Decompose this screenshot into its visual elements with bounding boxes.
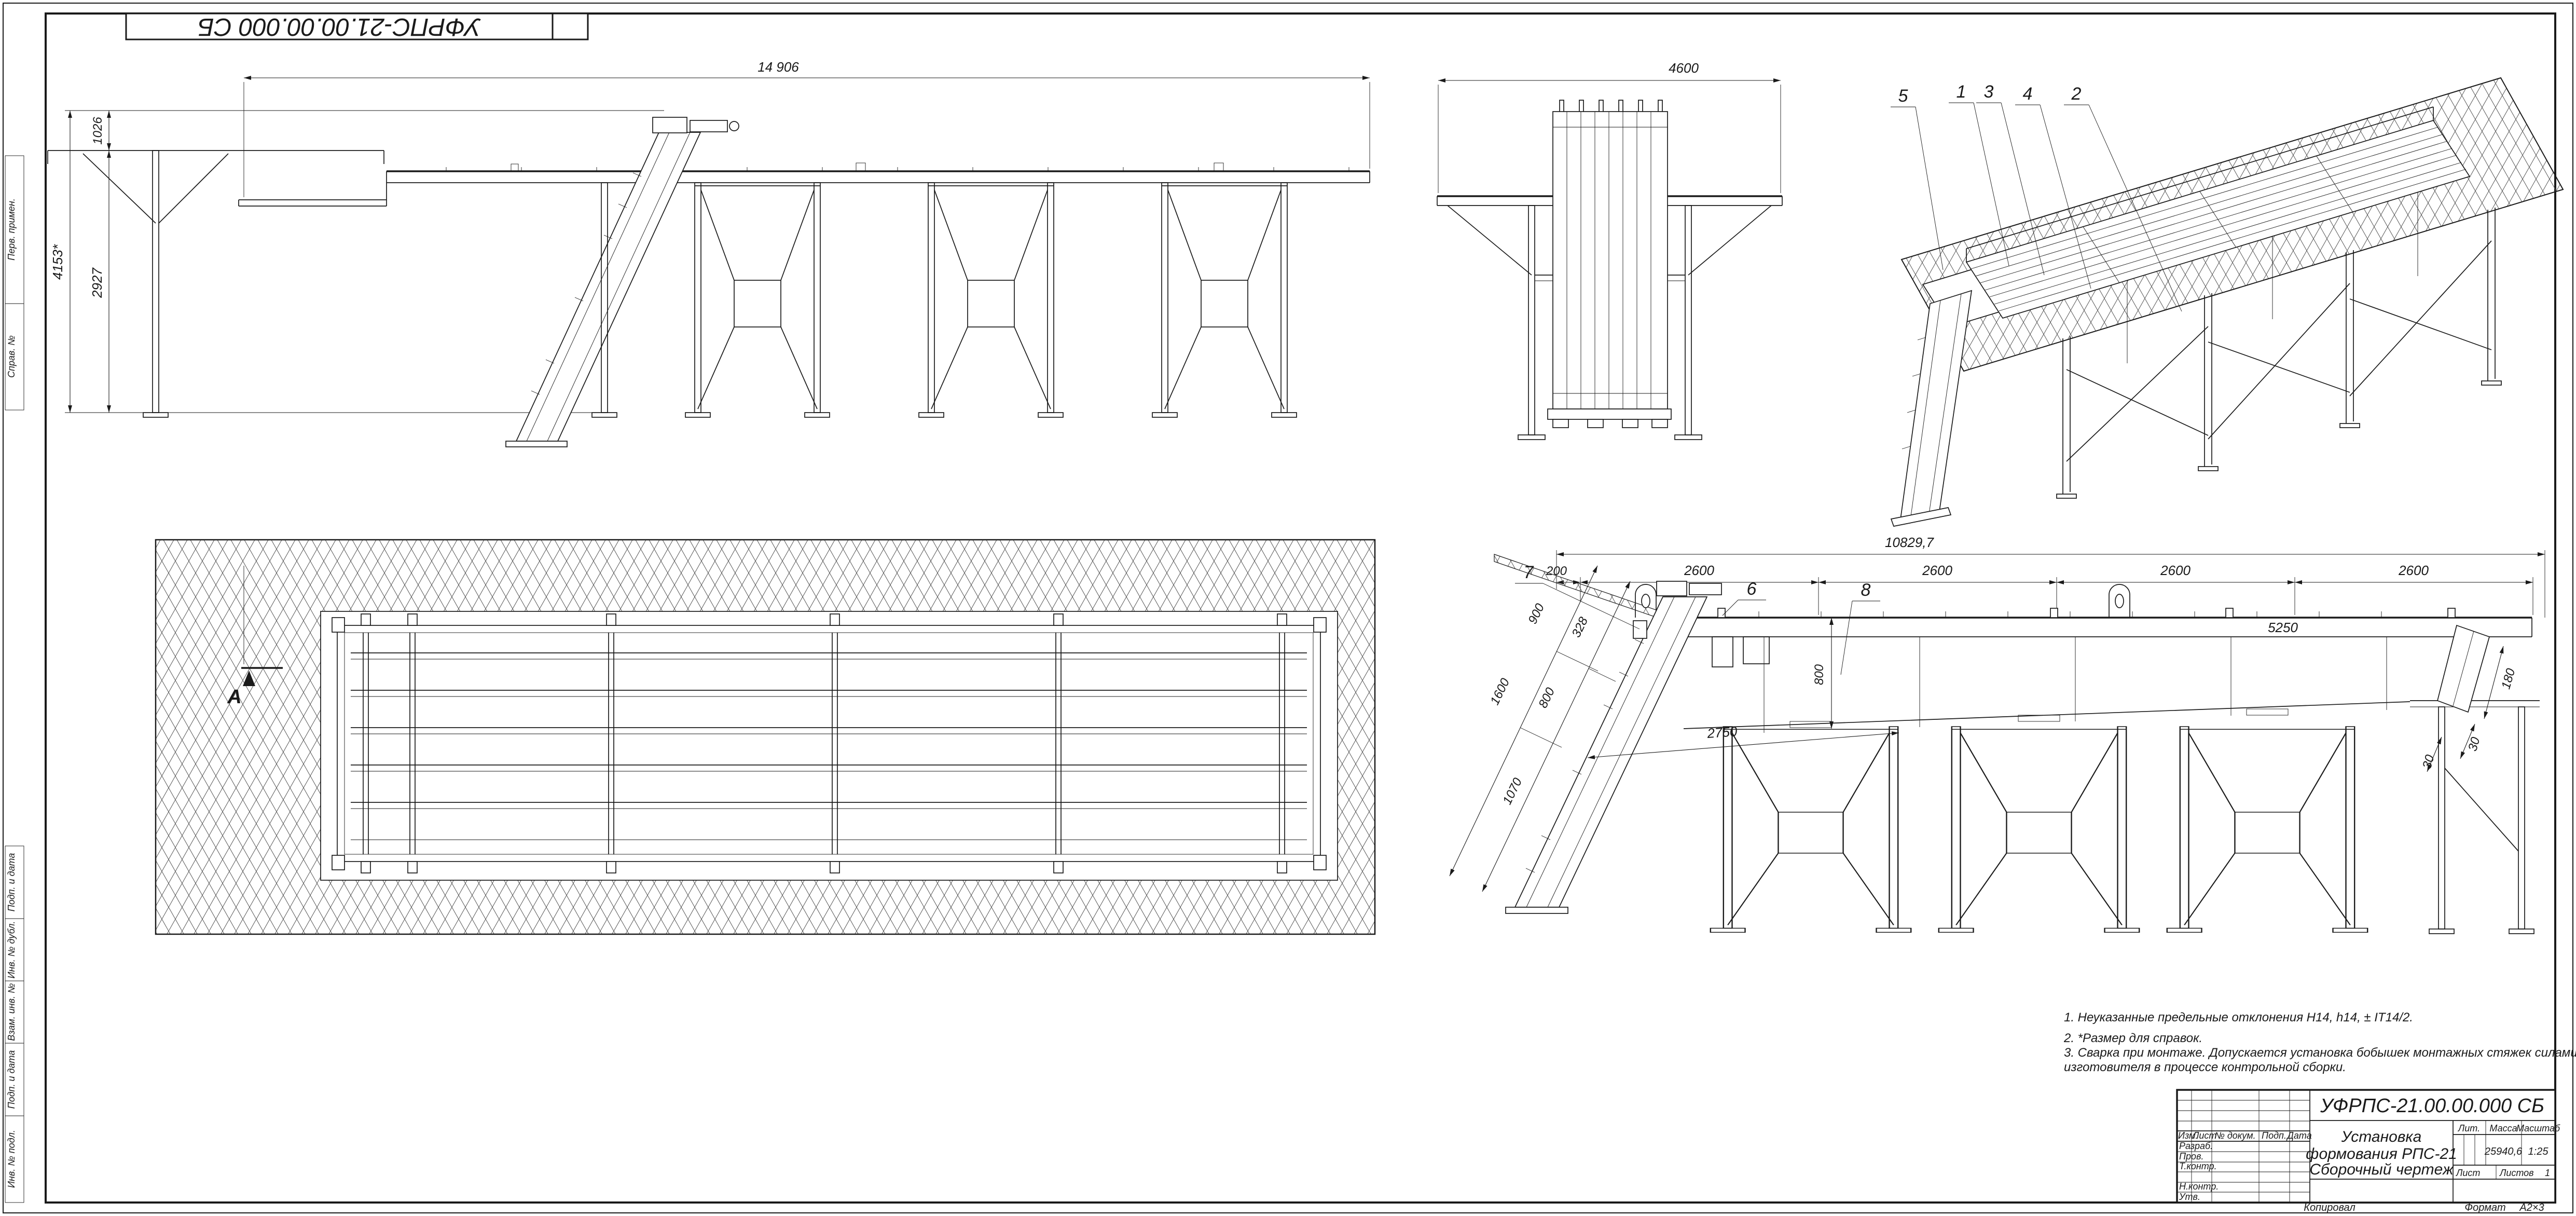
format-value: А2×3: [2519, 1202, 2544, 1213]
dim-label: 800: [1812, 664, 1826, 685]
row-prov: Пров.: [2179, 1151, 2203, 1162]
margin-label: Инв. № дубл.: [6, 921, 17, 979]
note-line: 3. Сварка при монтаже. Допускается устан…: [2064, 1046, 2576, 1060]
mass-label: Масса: [2489, 1123, 2517, 1133]
col-doc: № докум.: [2214, 1130, 2255, 1141]
dim-label: 4153*: [50, 244, 65, 280]
note-line: изготовителя в процессе контрольной сбор…: [2064, 1060, 2346, 1074]
tb-designation: УФРПС-21.00.00.000 СБ: [2320, 1095, 2544, 1117]
callout-1: 1: [1957, 82, 1966, 102]
callout-7: 7: [1524, 563, 1534, 582]
dim-label: 2927: [89, 267, 105, 298]
margin-label: Подп. и дата: [6, 1050, 17, 1109]
mould-pack: [1548, 100, 1671, 428]
copied-label: Копировал: [2304, 1202, 2355, 1213]
drawing-sheet: УФРПС-21.00.00.000 СБ Перв. примен. Спра…: [0, 0, 2576, 1216]
scale-label: Масштаб: [2516, 1123, 2560, 1133]
sheets-label: Листов: [2499, 1168, 2534, 1178]
margin-label: Подп. и дата: [6, 853, 17, 912]
dim-label: 2600: [1922, 563, 1952, 578]
dim-label: 2600: [2160, 563, 2191, 578]
lit-label: Лит.: [2458, 1123, 2480, 1133]
section-label: А: [227, 686, 241, 708]
callout-8: 8: [1861, 580, 1871, 600]
margin-label: Справ. №: [6, 335, 17, 378]
callout-5: 5: [1898, 86, 1908, 106]
dim-label: 5250: [2268, 620, 2298, 635]
sheets-value: 1: [2545, 1168, 2550, 1178]
margin-label: Перв. примен.: [6, 198, 17, 261]
margin-label: Инв. № подл.: [6, 1130, 17, 1188]
note-line: 1. Неуказанные предельные отклонения Н14…: [2064, 1010, 2413, 1024]
mass-value: 25940,6: [2484, 1146, 2523, 1157]
row-nkontr: Н.контр.: [2179, 1181, 2219, 1192]
row-utv: Утв.: [2179, 1192, 2200, 1202]
callout-6: 6: [1747, 579, 1757, 599]
format-label: Формат: [2464, 1202, 2505, 1213]
tb-name1: Установка: [2341, 1128, 2422, 1145]
tb-name3: Сборочный чертеж: [2309, 1161, 2454, 1178]
col-list: Лист: [2192, 1130, 2216, 1141]
row-razrab: Разраб.: [2179, 1141, 2213, 1151]
col-date: Дата: [2286, 1130, 2312, 1141]
cad-canvas: УФРПС-21.00.00.000 СБ Перв. примен. Спра…: [0, 0, 2576, 1216]
top-left-stamp: УФРПС-21.00.00.000 СБ: [126, 13, 588, 40]
view-plan: А: [156, 540, 1375, 934]
dim-label: 4600: [1669, 60, 1699, 76]
dim-label: 14 906: [757, 59, 799, 75]
callout-2: 2: [2071, 84, 2082, 104]
scale-value: 1:25: [2528, 1146, 2549, 1157]
sheet-label: Лист: [2456, 1168, 2480, 1178]
dim-label: 1026: [91, 117, 105, 145]
dim-label: 10829,7: [1885, 535, 1935, 550]
stamp-designation: УФРПС-21.00.00.000 СБ: [198, 13, 481, 40]
note-line: 2. *Размер для справок.: [2063, 1031, 2202, 1045]
dim-label: 2600: [2398, 563, 2429, 578]
row-tkontr: Т.контр.: [2179, 1161, 2217, 1171]
callout-4: 4: [2023, 84, 2033, 104]
callout-3: 3: [1984, 82, 1994, 102]
dim-label: 2750: [1706, 723, 1738, 741]
tb-name2: формования РПС-21: [2306, 1145, 2457, 1163]
col-sign: Подп.: [2262, 1130, 2286, 1141]
margin-label: Взам. инв. №: [6, 983, 17, 1041]
title-block: Изм. Лист № докум. Подп. Дата Разраб. Пр…: [2177, 1090, 2560, 1203]
dim-label: 2600: [1684, 563, 1714, 578]
